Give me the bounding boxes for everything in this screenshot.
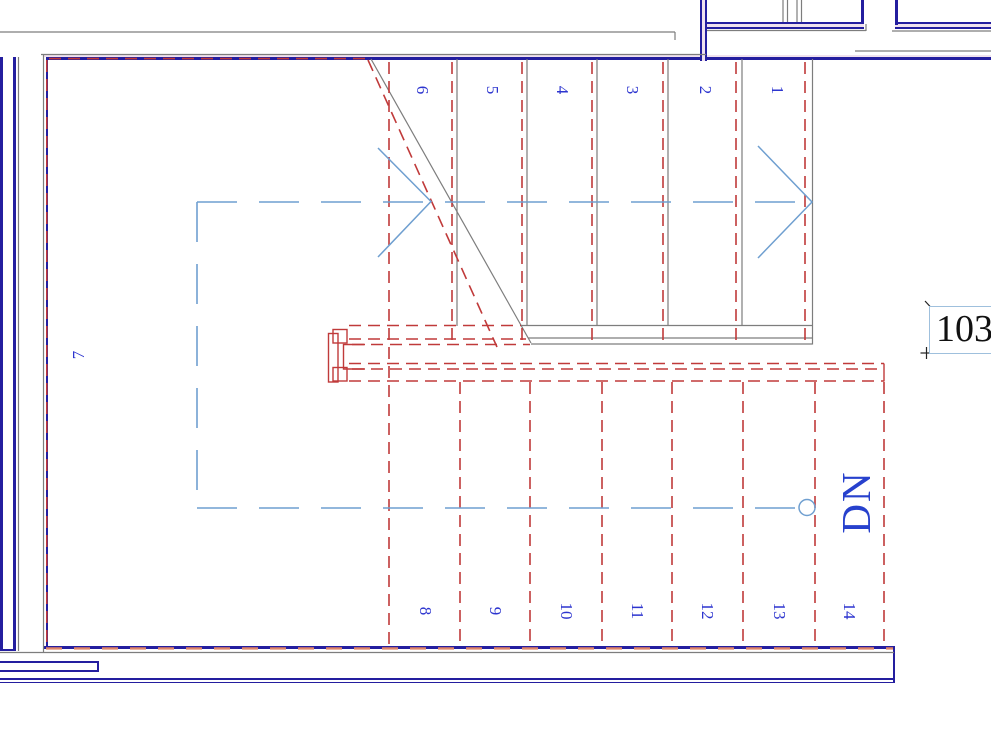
- tread-number: 6: [410, 78, 434, 102]
- tread-number: 14: [837, 599, 861, 623]
- tread-number: 5: [480, 78, 504, 102]
- tread-number: 8: [413, 599, 437, 623]
- room-number-label[interactable]: 103: [929, 306, 991, 354]
- floor-plan-canvas[interactable]: 6 5 4 3 2 1 7 8 9 10 11 12 13 14 DN 103: [0, 0, 991, 743]
- tread-number: 10: [554, 599, 578, 623]
- tread-number: 9: [483, 599, 507, 623]
- stair-path-start-marker: [799, 500, 815, 516]
- tread-number: 13: [767, 599, 791, 623]
- tread-number: 2: [693, 78, 717, 102]
- stair-direction-label: DN: [834, 447, 878, 557]
- stair-path: [197, 202, 810, 508]
- tread-number: 11: [625, 599, 649, 623]
- tread-number: 1: [765, 78, 789, 102]
- stair-linework: [0, 0, 991, 743]
- newel-post-detail: [329, 330, 366, 383]
- tread-number: 4: [550, 78, 574, 102]
- tread-number: 3: [620, 78, 644, 102]
- tread-number: 12: [695, 599, 719, 623]
- tread-number: 7: [67, 343, 91, 367]
